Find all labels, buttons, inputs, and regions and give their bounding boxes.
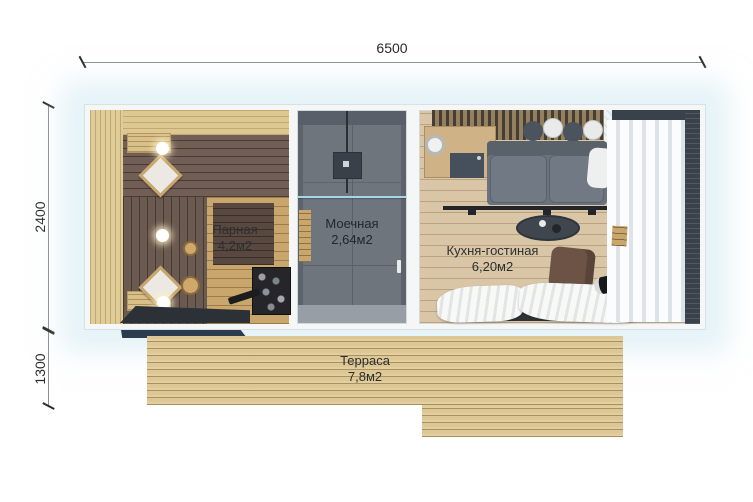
room-label-kitchen: Кухня-гостиная 6,20м2 [415, 243, 570, 276]
room-area: 2,64м2 [297, 232, 407, 248]
room-label-terrace: Терраса 7,8м2 [300, 353, 430, 386]
wood-ladder [611, 226, 627, 247]
room-name: Терраса [340, 353, 390, 368]
floor-plan-canvas: 6500 2400 1300 Парная 4,2м2 [0, 0, 753, 502]
room-area: 6,20м2 [415, 259, 570, 275]
sauna-bucket [181, 276, 200, 295]
bar-stool [523, 121, 543, 141]
bed-blanket [436, 285, 523, 324]
bar-stool [563, 122, 583, 142]
sauna-top-wall-panel [123, 110, 289, 135]
table-item [539, 220, 546, 227]
table-item [552, 224, 561, 233]
right-wall-frame [685, 110, 700, 324]
dimension-terrace-depth-line [48, 331, 49, 406]
ceiling-light [156, 142, 169, 155]
kitchen-sink [450, 153, 484, 178]
door-handle [397, 260, 401, 273]
dimension-height-line [48, 105, 49, 330]
terrace-deck-extension [422, 405, 623, 437]
round-dish [425, 135, 445, 155]
room-name: Моечная [325, 216, 378, 231]
shower-head [333, 152, 362, 179]
sofa-cushion [490, 155, 547, 203]
bar-stool [543, 118, 563, 138]
room-label-moechnaya: Моечная 2,64м2 [297, 216, 407, 249]
glass-partition [298, 196, 406, 198]
ceiling-light [156, 229, 169, 242]
dimension-terrace-depth-label: 1300 [32, 339, 48, 399]
dimension-width-label: 6500 [82, 40, 702, 56]
dimension-height-label: 2400 [32, 187, 48, 247]
dimension-width-line [82, 62, 703, 63]
curtains [607, 120, 685, 322]
room-label-parnaya: Парная 4,2м2 [175, 222, 295, 255]
sauna-left-wall-panel [90, 110, 123, 324]
bar-stool [583, 120, 603, 140]
track-spotlight [588, 210, 596, 215]
room-area: 4,2м2 [175, 238, 295, 254]
coffee-table [516, 215, 580, 241]
room-name: Кухня-гостиная [447, 243, 539, 258]
room-area: 7,8м2 [300, 369, 430, 385]
track-spotlight [468, 210, 476, 215]
room-name: Парная [212, 222, 257, 237]
